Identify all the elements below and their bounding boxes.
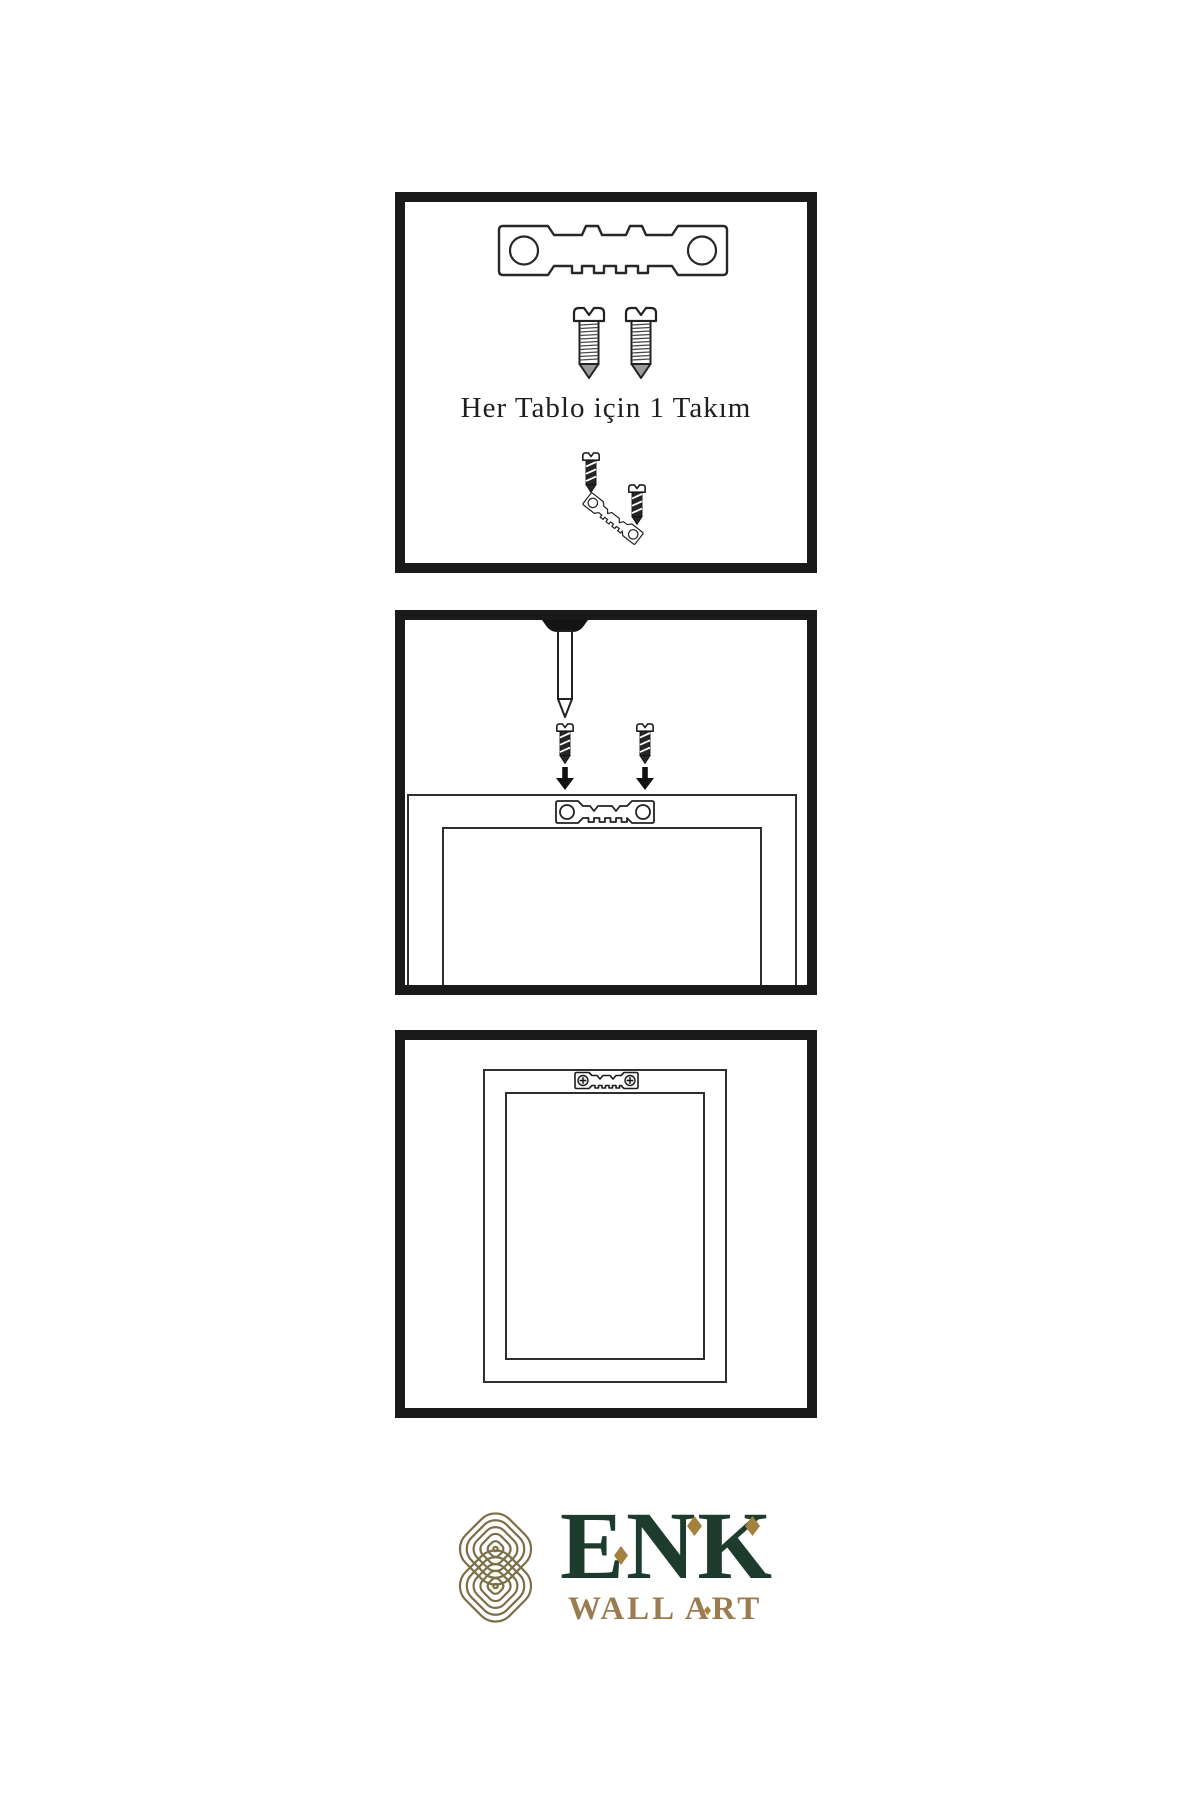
panel-hardware-kit: Her Tablo için 1 Takım	[395, 192, 817, 573]
kit-caption: Her Tablo için 1 Takım	[405, 392, 807, 425]
down-arrow-icon	[636, 767, 654, 791]
screw-icon	[571, 304, 607, 382]
brand-tagline: WALL ART	[568, 1593, 762, 1626]
dark-screw-icon	[555, 721, 575, 765]
knot-logo-icon	[438, 1505, 553, 1630]
dark-screw-icon	[635, 721, 655, 765]
sawtooth-hanger-icon	[553, 799, 657, 825]
screw-into-hanger-assembly-icon	[573, 446, 673, 553]
frame-back-inner-outline	[442, 827, 762, 995]
sawtooth-hanger-icon	[496, 223, 730, 278]
installed-hanger-icon	[573, 1071, 640, 1090]
picture-frame-inner-outline	[505, 1092, 705, 1360]
screw-icon	[623, 304, 659, 382]
panel-hang-frame	[395, 1030, 817, 1418]
panel-attach-hanger	[395, 610, 817, 995]
wall-nail-icon	[542, 620, 588, 720]
brand-name: ENK	[560, 1498, 774, 1594]
down-arrow-icon	[556, 767, 574, 791]
